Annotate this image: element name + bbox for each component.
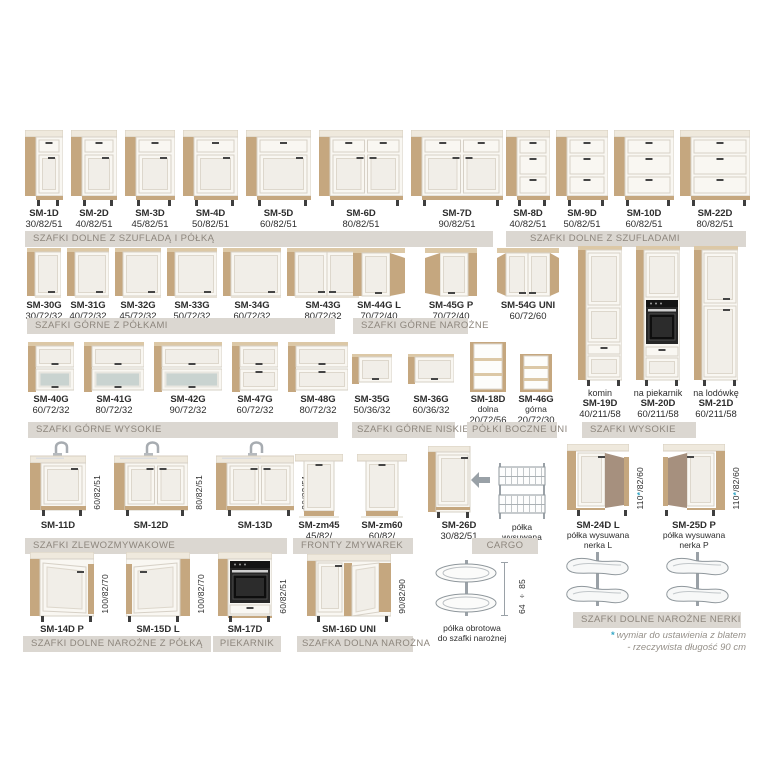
cabinet-illustration bbox=[496, 461, 548, 521]
product-card-sm-14d-p: 100/82/70SM-14D P bbox=[25, 552, 99, 635]
section-label: SZAFKI DOLNE NAROŻNE NERKI bbox=[573, 612, 741, 628]
cabinet-illustration bbox=[497, 248, 559, 298]
asterisk: * bbox=[611, 630, 615, 641]
cabinet-illustration bbox=[216, 440, 294, 518]
cabinet-illustration bbox=[352, 354, 392, 384]
vertical-dimension: 110*/82/60 bbox=[731, 467, 741, 510]
section-label: SZAFKI GÓRNE NAROŻNE bbox=[353, 318, 468, 334]
product-card bbox=[563, 550, 633, 608]
cabinet-illustration bbox=[694, 246, 738, 386]
footnote-line-1: *wymiar do ustawienia z blatem bbox=[611, 630, 746, 642]
cabinet-illustration bbox=[353, 248, 405, 298]
product-group-g16: 64 ÷ 85półka obrotowado szafki narożnej bbox=[428, 552, 516, 643]
cabinet-illustration bbox=[663, 444, 725, 518]
vertical-dimension: 60/82/51 bbox=[92, 475, 102, 510]
cabinet-illustration bbox=[433, 558, 511, 618]
product-card-sm-25d-p: 110*/82/60SM-25D Ppółka wysuwananerka P bbox=[658, 436, 730, 550]
product-dimensions: 80/82/51 bbox=[659, 219, 770, 230]
cabinet-illustration bbox=[154, 342, 222, 392]
cabinet-illustration bbox=[167, 248, 217, 298]
cabinet-illustration bbox=[30, 552, 94, 622]
cabinet-illustration bbox=[125, 130, 175, 206]
product-group-g10: SM-zm4545/82/SM-zm6060/82/ bbox=[295, 436, 407, 542]
product-label: SM-16D UNI bbox=[293, 624, 405, 635]
footnote: *wymiar do ustawienia z blatem - rzeczyw… bbox=[611, 630, 746, 653]
product-group-g15: 90/82/90SM-16D UNI bbox=[302, 552, 396, 635]
cabinet-illustration bbox=[246, 130, 311, 206]
cabinet-illustration bbox=[287, 248, 359, 298]
cabinet-illustration bbox=[680, 130, 750, 206]
product-subtitle: nerka P bbox=[638, 541, 750, 551]
product-group-g4: SM-44G L70/72/40SM-45G P70/72/40SM-54G U… bbox=[353, 248, 559, 322]
product-name: SM-54G UNI bbox=[472, 300, 584, 311]
product-label: SM-17D bbox=[189, 624, 301, 635]
product-name: SM-12D bbox=[95, 520, 207, 531]
vertical-dimension: 100/82/70 bbox=[196, 574, 206, 614]
product-card-sm-11d: 60/82/51SM-11D bbox=[25, 436, 91, 531]
cabinet-illustration bbox=[567, 444, 629, 518]
cabinet-illustration bbox=[30, 440, 86, 518]
cabinet-illustration bbox=[556, 130, 608, 206]
product-group-g12: 110*/82/60SM-24D Lpółka wysuwananerka L1… bbox=[562, 436, 730, 550]
product-card: 64 ÷ 85półka obrotowado szafki narożnej bbox=[428, 552, 516, 643]
section-label: SZAFKI DOLNE Z SZUFLADĄ I PÓŁKĄ bbox=[25, 231, 493, 247]
cabinet-illustration bbox=[563, 552, 633, 608]
cabinet-illustration bbox=[28, 342, 74, 392]
cabinet-illustration bbox=[411, 130, 503, 206]
product-group-g14: 60/82/51SM-17D bbox=[213, 552, 277, 635]
cabinet-illustration bbox=[295, 454, 343, 518]
product-card-sm-45g-p: SM-45G P70/72/40 bbox=[425, 248, 477, 322]
cabinet-illustration bbox=[218, 552, 272, 622]
kitchen-cabinet-catalog: *wymiar do ustawienia z blatem - rzeczyw… bbox=[0, 0, 770, 770]
cabinet-illustration bbox=[614, 130, 674, 206]
product-group-g1: SM-1D30/82/51SM-2D40/82/51SM-3D45/82/51S… bbox=[25, 126, 503, 230]
product-purpose: na lodówkę bbox=[660, 388, 770, 398]
product-name: SM-22D bbox=[659, 208, 770, 219]
product-group-g3: SM-30G30/72/32SM-31G40/72/32SM-32G45/72/… bbox=[27, 248, 359, 322]
asterisk: * bbox=[635, 492, 645, 496]
product-card-sm-zm60: SM-zm6060/82/ bbox=[357, 436, 407, 542]
product-subtitle: do szafki narożnej bbox=[416, 634, 528, 644]
product-group-g8: kominSM-19D40/211/58na piekarnikSM-20D60… bbox=[578, 240, 738, 420]
product-card bbox=[663, 550, 733, 608]
product-card-sm-13d: 90/82/51SM-13D bbox=[211, 436, 299, 531]
product-name: SM-21D bbox=[660, 398, 770, 409]
cabinet-illustration bbox=[408, 354, 454, 384]
vertical-dimension: 64 ÷ 85 bbox=[517, 579, 527, 614]
vertical-dimension: 100/82/70 bbox=[100, 574, 110, 614]
cabinet-illustration bbox=[663, 552, 733, 608]
asterisk: * bbox=[731, 492, 741, 496]
product-card-sm-17d: 60/82/51SM-17D bbox=[213, 552, 277, 635]
cabinet-illustration bbox=[126, 552, 190, 622]
cabinet-illustration bbox=[357, 454, 407, 518]
product-card: półkawysuwana bbox=[496, 439, 548, 542]
vertical-dimension: 60/82/51 bbox=[278, 579, 288, 614]
cabinet-illustration bbox=[425, 248, 477, 298]
cabinet-illustration bbox=[67, 248, 109, 298]
product-card-sm-15d-l: 100/82/70SM-15D L bbox=[121, 552, 195, 635]
product-label: SM-22D80/82/51 bbox=[659, 208, 770, 230]
product-card-sm-16d-uni: 90/82/90SM-16D UNI bbox=[302, 552, 396, 635]
footnote-line-2: - rzeczywista długość 90 cm bbox=[611, 642, 746, 654]
cabinet-illustration bbox=[288, 342, 348, 392]
product-group-g7: SM-18Ddolna20/72/56SM-46Ggórna20/72/30 bbox=[470, 342, 552, 426]
product-card-sm-5d: SM-5D60/82/51 bbox=[246, 126, 311, 230]
product-group-g2: SM-8D40/82/51SM-9D50/82/51SM-10D60/82/51… bbox=[506, 126, 750, 230]
cabinet-illustration bbox=[319, 130, 403, 206]
cabinet-illustration bbox=[71, 130, 117, 206]
section-label: SZAFKI DOLNE NAROŻNE Z PÓŁKĄ bbox=[23, 636, 211, 652]
cabinet-illustration bbox=[578, 246, 622, 386]
cabinet-illustration bbox=[520, 354, 552, 392]
product-name: SM-16D UNI bbox=[293, 624, 405, 635]
product-group-g5: SM-40G60/72/32SM-41G80/72/32SM-42G90/72/… bbox=[28, 342, 348, 416]
product-label: SM-25D Ppółka wysuwananerka P bbox=[638, 520, 750, 550]
cabinet-illustration bbox=[183, 130, 238, 206]
cabinet-illustration bbox=[223, 248, 281, 298]
product-label: na lodówkęSM-21D60/211/58 bbox=[660, 388, 770, 420]
section-label: PIEKARNIK bbox=[213, 636, 281, 652]
cabinet-illustration bbox=[470, 342, 506, 392]
product-card-sm-54g-uni: SM-54G UNI60/72/60 bbox=[497, 248, 559, 322]
product-group-g12b bbox=[563, 550, 733, 608]
product-label: półka obrotowado szafki narożnej bbox=[416, 624, 528, 643]
cabinet-illustration bbox=[428, 446, 490, 518]
product-group-g13: 100/82/70SM-14D P100/82/70SM-15D L bbox=[25, 552, 195, 635]
product-card-sm-21d: na lodówkęSM-21D60/211/58 bbox=[694, 240, 738, 420]
cabinet-illustration bbox=[636, 246, 680, 386]
product-card-sm-12d: 80/82/51SM-12D bbox=[109, 436, 193, 531]
cabinet-illustration bbox=[307, 554, 391, 622]
cabinet-illustration bbox=[232, 342, 278, 392]
cabinet-illustration bbox=[27, 248, 61, 298]
product-group-g9: 60/82/51SM-11D80/82/51SM-12D90/82/51SM-1… bbox=[25, 436, 299, 531]
vertical-dimension: 80/82/51 bbox=[194, 475, 204, 510]
product-card-sm-6d: SM-6D80/82/51 bbox=[319, 126, 403, 230]
product-card-sm-22d: SM-22D80/82/51 bbox=[680, 126, 750, 230]
cabinet-illustration bbox=[115, 248, 161, 298]
product-group-g11: SM-26D30/82/51półkawysuwana bbox=[428, 436, 548, 542]
cabinet-illustration bbox=[25, 130, 63, 206]
cabinet-illustration bbox=[506, 130, 550, 206]
cabinet-illustration bbox=[114, 440, 188, 518]
product-dimensions: 60/211/58 bbox=[660, 409, 770, 420]
product-label: SM-12D bbox=[95, 520, 207, 531]
product-label: SM-54G UNI60/72/60 bbox=[472, 300, 584, 322]
cabinet-illustration bbox=[84, 342, 144, 392]
section-label: SZAFKA DOLNA NAROŻNA bbox=[297, 636, 413, 652]
product-name: SM-17D bbox=[189, 624, 301, 635]
vertical-dimension: 90/82/90 bbox=[397, 579, 407, 614]
vertical-dimension: 110*/82/60 bbox=[635, 467, 645, 510]
product-card-sm-24d-l: 110*/82/60SM-24D Lpółka wysuwananerka L bbox=[562, 436, 634, 550]
footnote-text: wymiar do ustawienia z blatem bbox=[617, 630, 746, 641]
section-label: SZAFKI GÓRNE Z PÓŁKAMI bbox=[27, 318, 335, 334]
